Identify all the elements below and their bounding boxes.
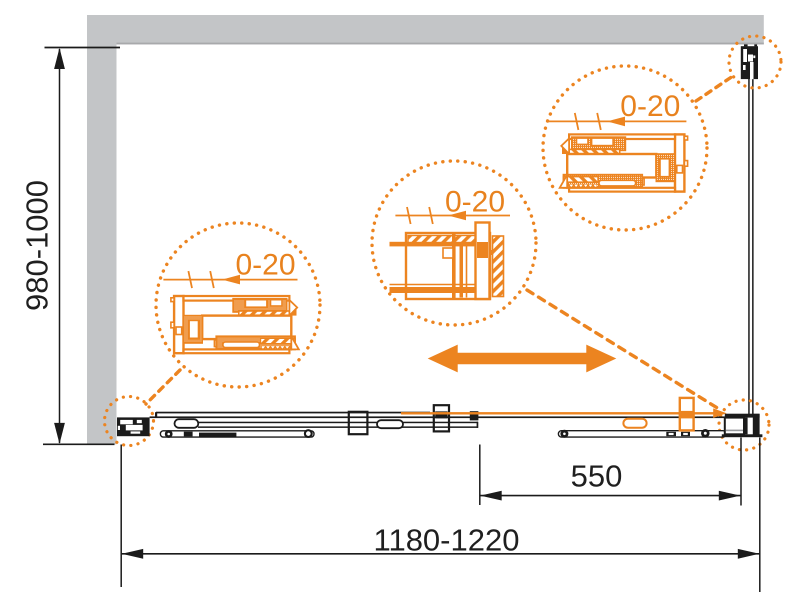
svg-text:980-1000: 980-1000 bbox=[19, 180, 54, 311]
svg-text:0-20: 0-20 bbox=[620, 90, 680, 123]
svg-text:550: 550 bbox=[571, 458, 623, 493]
svg-text:1180-1220: 1180-1220 bbox=[374, 523, 520, 558]
svg-text:0-20: 0-20 bbox=[235, 249, 295, 282]
svg-text:0-20: 0-20 bbox=[445, 186, 505, 219]
